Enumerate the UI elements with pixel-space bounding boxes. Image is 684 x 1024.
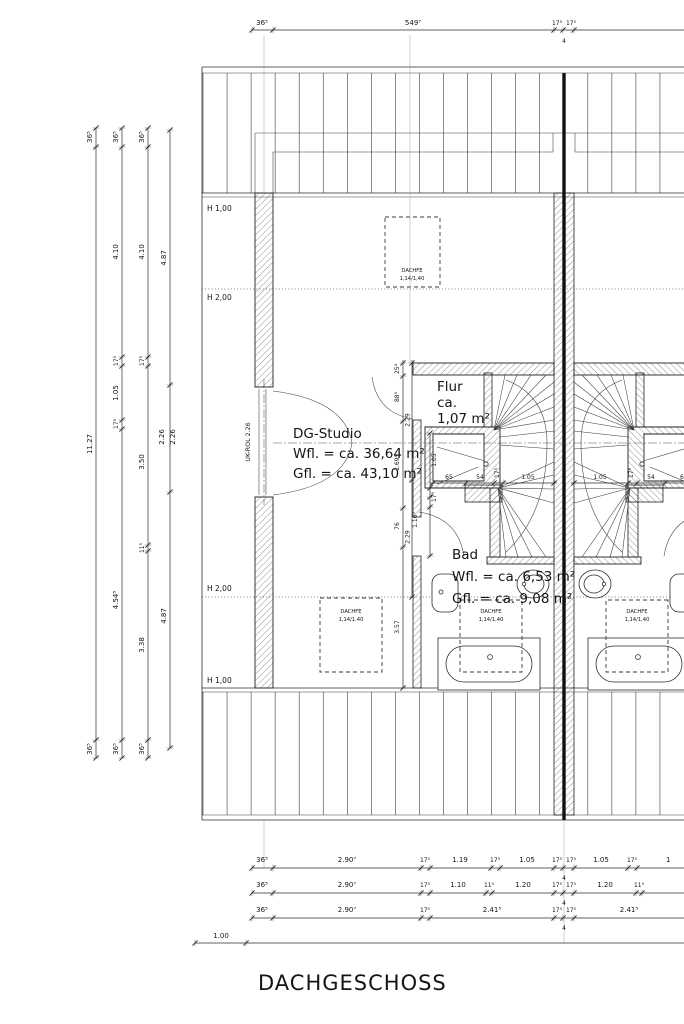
dimension-label: 17⁵: [627, 857, 638, 864]
dim-chain-left-2: [119, 125, 126, 760]
dimension-label: 65: [680, 474, 684, 481]
dim-chain-left-3: [145, 125, 152, 760]
dimension-label: 1.16⁵: [412, 512, 419, 528]
room-area-prefix: ca.: [437, 395, 457, 411]
dimension-label: 4: [562, 875, 566, 882]
dimension-label: 1.20: [515, 881, 531, 889]
dimension-label: 2.90⁷: [338, 881, 357, 889]
dimension-label: 17⁵: [566, 882, 577, 889]
dimension-label: 17⁵: [552, 907, 563, 914]
room-area: 1,07 m²: [437, 411, 490, 427]
dimension-label: 36⁵: [86, 131, 94, 143]
dimension-label: 549⁷: [405, 19, 421, 27]
dimension-label: 36⁵: [256, 906, 268, 914]
dimension-label: 76: [394, 522, 401, 530]
exterior-wall: [255, 497, 273, 688]
room-gfl: Gfl. = ca. 9,08 m²: [452, 591, 572, 607]
dim-chain-top: [249, 27, 684, 34]
dimension-label: 11⁵: [634, 882, 645, 889]
room-wfl: Wfl. = ca. 6,53 m²: [452, 569, 575, 585]
height-lines: [202, 193, 684, 692]
dimension-label: 4.87: [160, 250, 168, 266]
party-wall: [554, 73, 574, 820]
height-label-h100: H 1,00: [207, 676, 232, 685]
dimension-label: 54: [476, 474, 484, 481]
staircase: [494, 375, 554, 557]
french-window: [255, 379, 352, 505]
dimension-label: 17⁵: [420, 907, 431, 914]
dimension-label: 17⁵: [113, 355, 120, 366]
exterior-wall: [255, 193, 273, 387]
dimension-label: 36⁵: [112, 743, 120, 755]
dimension-label: 17⁵: [552, 882, 563, 889]
stair-walkline: [506, 380, 547, 552]
dimension-label: 1.05: [521, 474, 535, 481]
dimension-label: 4: [562, 925, 566, 932]
roof-window-label: DACHFE: [340, 609, 361, 615]
roof-window-label: DACHFE: [401, 268, 422, 274]
roof-window-label: DACHFE: [480, 609, 501, 615]
dimension-label: 2.90⁷: [338, 856, 357, 864]
dimension-label: 4.10: [112, 244, 120, 260]
room-name: Bad: [452, 547, 478, 563]
dimension-label: 25⁴: [394, 363, 401, 374]
roof-window-label: DACHFE: [626, 609, 647, 615]
dimension-label: 54: [647, 474, 655, 481]
dimension-label: 1.05: [431, 453, 438, 467]
dimension-label: 1.19: [452, 856, 468, 864]
dimension-label: 1.00: [213, 932, 229, 940]
dim-labels-left: 36⁵ 11.27 36⁵ 36⁵ 4.10 17⁵ 1.05 17⁵ 4.54…: [86, 131, 177, 755]
dimension-label: 1.10: [450, 881, 466, 889]
height-label-h200: H 2,00: [207, 293, 232, 302]
dimension-label: 2.41⁵: [483, 906, 502, 914]
height-label-h100: H 1,00: [207, 204, 232, 213]
dimension-label: 4: [562, 900, 566, 907]
room-wfl: Wfl. = ca. 36,64 m²: [293, 446, 425, 462]
dimension-label: 4.10: [138, 244, 146, 260]
dimension-label: 2.26: [158, 429, 166, 445]
dimension-label: 2.29: [405, 413, 412, 427]
dimension-label: 65: [445, 474, 453, 481]
dim-labels-bottom-2: 36⁵ 2.90⁷ 17⁵ 1.10 11⁵ 1.20 17⁵ 17⁵ 1.20…: [256, 881, 644, 907]
dim-labels-bottom-1: 36⁵ 2.90⁷ 17⁵ 1.19 17⁵ 1.05 17⁵ 17⁵ 1.05…: [256, 856, 670, 882]
dim-labels-bottom-3: 36⁵ 2.90⁷ 17⁵ 2.41⁵ 17⁵ 17⁵ 2.41⁵ 4: [256, 906, 638, 932]
window-sill-label: UK-ROL 2.26: [245, 422, 252, 461]
dimension-label: 36⁵: [138, 131, 146, 143]
dimension-label: 17⁵: [113, 418, 120, 429]
roof-window-size: 1,14/1,40: [400, 276, 425, 282]
dimension-label: 4.54⁵: [112, 591, 120, 610]
dimension-label: 3.57: [394, 620, 401, 634]
drawing-title: DACHGESCHOSS: [258, 971, 447, 995]
room-label-flur: Flur ca. 1,07 m²: [437, 379, 490, 427]
dimension-label: 1.05: [112, 385, 120, 401]
dimension-label: 17⁵: [420, 882, 431, 889]
bathtub: [438, 638, 540, 690]
dim-chain-bottom-3: [249, 915, 684, 922]
dimension-label: 36⁵: [256, 881, 268, 889]
dimension-label: 17⁵: [628, 467, 635, 478]
room-name: Flur: [437, 379, 463, 395]
dimension-label: 36⁵: [86, 743, 94, 755]
height-labels: H 1,00 H 2,00 H 2,00 H 1,00: [207, 204, 232, 685]
dimension-label: 1.05: [593, 474, 607, 481]
dimension-label: 17⁵: [490, 857, 501, 864]
dimension-label: 17⁵: [139, 355, 146, 366]
dimension-label: 2.90⁷: [338, 906, 357, 914]
dimension-label: 36⁵: [112, 131, 120, 143]
room-name: DG-Studio: [293, 426, 362, 442]
dim-chain-bottom-4: [192, 940, 684, 947]
dimension-label: 2.26: [169, 429, 177, 445]
roof-window-size: 1,14/1,40: [339, 617, 364, 623]
dimension-label: 4: [562, 38, 566, 45]
stair-bottom-wall: [487, 557, 554, 564]
roof-step-lines: [255, 133, 684, 193]
dimension-label: 3.50: [138, 454, 146, 470]
dim-labels-top: 36⁵ 549⁷ 17⁵ 17⁵ 4: [256, 19, 576, 45]
dimension-label: 17⁵: [566, 857, 577, 864]
dimension-label: 1.20: [597, 881, 613, 889]
dimension-label: 1: [666, 856, 670, 864]
dimension-label: 2.29: [405, 530, 412, 544]
dimension-label: 17⁵: [552, 20, 563, 27]
dimension-label: 17⁵: [566, 907, 577, 914]
dimension-label: 36⁵: [138, 743, 146, 755]
roof-rafters-bottom: [203, 692, 660, 815]
dim-chain-bottom-2: [249, 890, 684, 897]
height-label-h200: H 2,00: [207, 584, 232, 593]
partition-wall: [413, 556, 421, 688]
dimension-label: 11⁵: [139, 542, 146, 553]
dimension-label: 17⁵: [566, 20, 577, 27]
dimension-label: 17⁵: [494, 467, 501, 478]
dimension-label: 2.41⁵: [620, 906, 639, 914]
dimension-label: 17⁵: [552, 857, 563, 864]
dimension-label: 17⁵: [431, 491, 438, 502]
dimension-label: 88⁵: [394, 391, 401, 402]
dimension-label: 36⁵: [256, 856, 268, 864]
dimension-label: 36⁵: [256, 19, 268, 27]
dimension-label: 1.05: [593, 856, 609, 864]
dimension-label: 11⁵: [484, 882, 495, 889]
dwelling-unit-structure-mirrored: [574, 193, 684, 690]
floor-plan-sheet: 36⁵ 549⁷ 17⁵ 17⁵ 4 36⁵ 11.27 36⁵ 36⁵ 4.1…: [0, 0, 684, 1024]
dimension-label: 17⁵: [420, 857, 431, 864]
room-label-studio: DG-Studio Wfl. = ca. 36,64 m² Gfl. = ca.…: [293, 426, 425, 482]
floor-plan-drawing: 36⁵ 549⁷ 17⁵ 17⁵ 4 36⁵ 11.27 36⁵ 36⁵ 4.1…: [0, 0, 684, 1024]
dimension-label: 11.27: [86, 434, 94, 454]
dimension-label: 3.38: [138, 637, 146, 653]
door-swing-arc: [372, 377, 413, 419]
dimension-label: 4.87: [160, 608, 168, 624]
roof-window-size: 1,14/1,40: [479, 617, 504, 623]
room-gfl: Gfl. = ca. 43,10 m²: [293, 466, 422, 482]
dimension-label: 1.05: [519, 856, 535, 864]
roof-window-size: 1,14/1,40: [625, 617, 650, 623]
stair-top-wall: [413, 363, 554, 375]
dim-chain-bottom-1: [249, 865, 684, 872]
